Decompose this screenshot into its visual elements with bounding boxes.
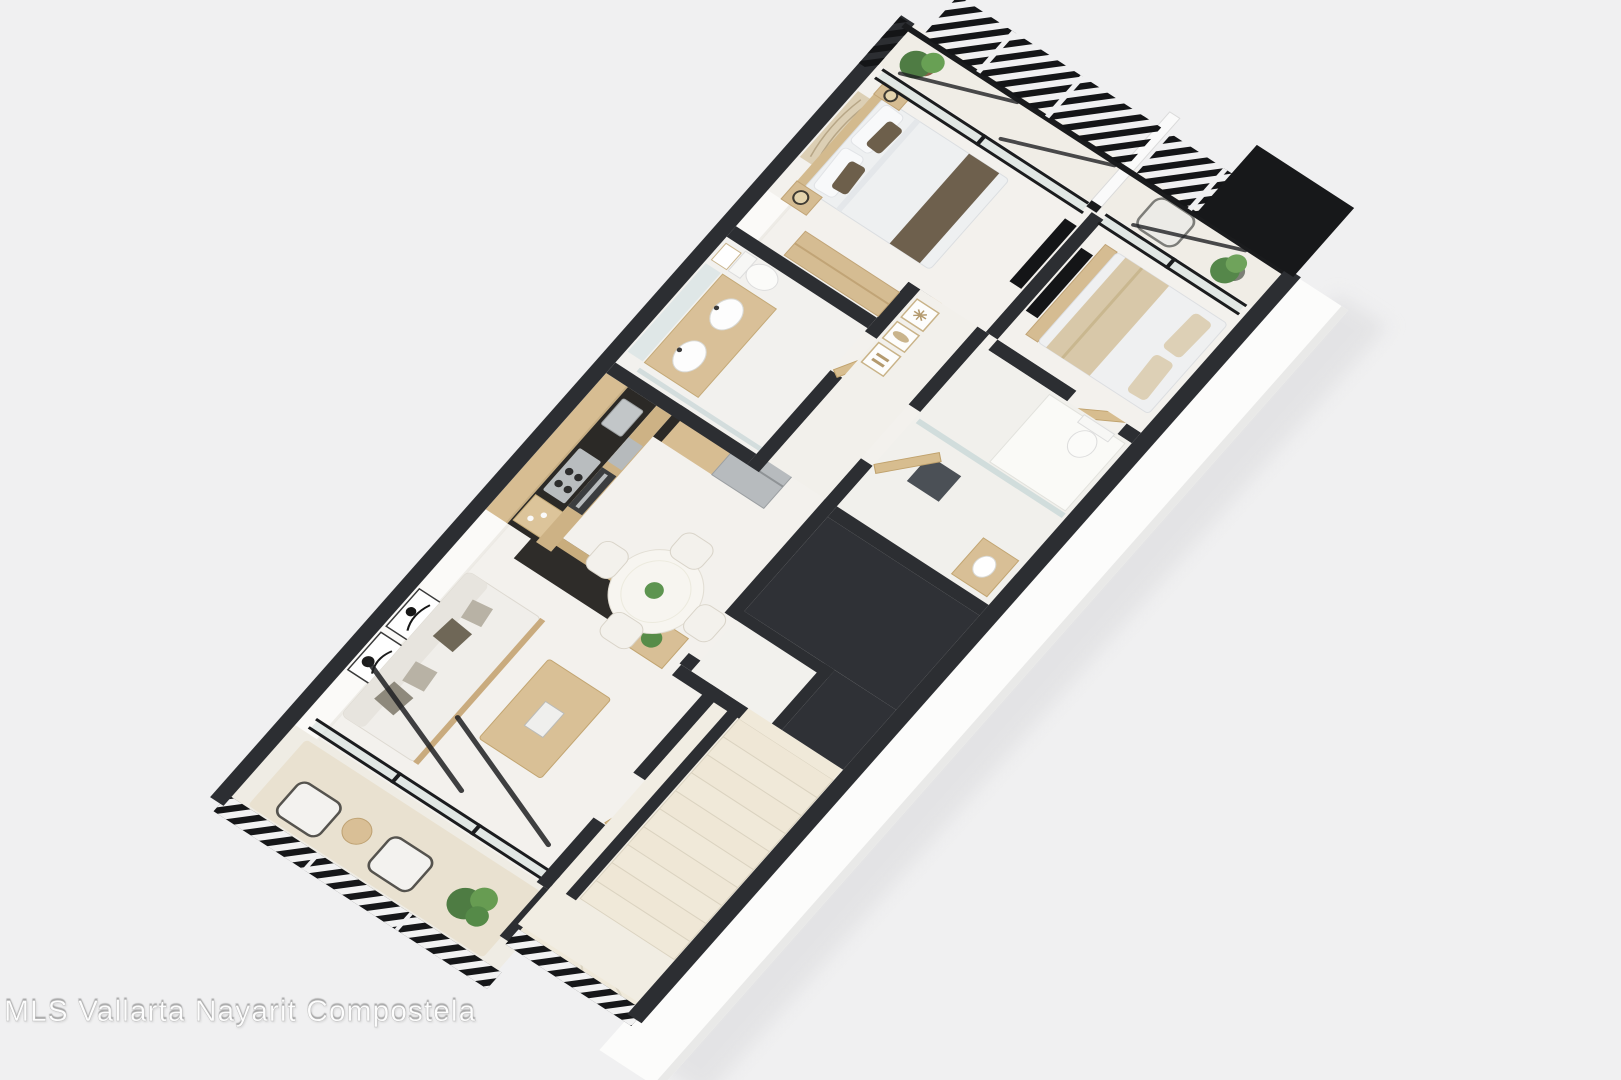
- floor-plan-canvas: MLS Vallarta Nayarit Compostela: [0, 0, 1621, 1080]
- floor-plan-svg: [0, 0, 1621, 1080]
- watermark-text: MLS Vallarta Nayarit Compostela: [4, 995, 476, 1029]
